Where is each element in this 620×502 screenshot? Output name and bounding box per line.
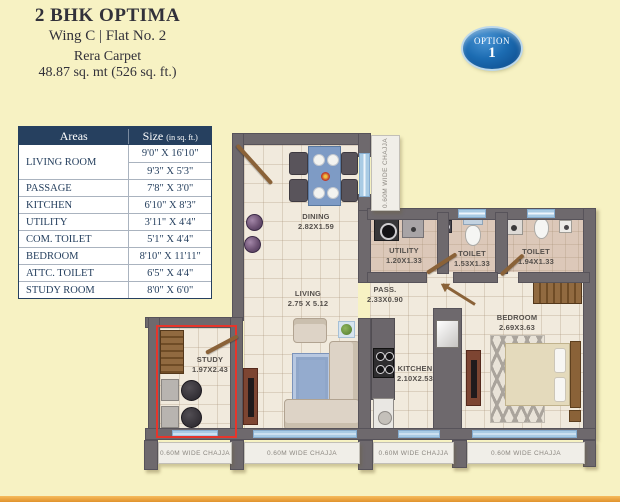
tv-screen: [471, 360, 477, 398]
areas-table: Areas Size (in sq. ft.) LIVING ROOM PASS…: [18, 126, 212, 299]
wall: [518, 272, 590, 283]
window: [472, 430, 577, 438]
table-row-bedroom: BEDROOM: [19, 247, 128, 264]
room-label-bedroom: BEDROOM 2.69X3.63: [482, 313, 552, 333]
window: [458, 209, 486, 218]
room-name: TOILET: [501, 247, 571, 257]
bed: [505, 343, 570, 406]
plant: [244, 236, 261, 253]
bed-headboard: [570, 341, 581, 408]
room-dims: 2.82X1.59: [281, 222, 351, 232]
table-row-utility: UTILITY: [19, 213, 128, 230]
table-row-kitchen: KITCHEN: [19, 196, 128, 213]
burner: [376, 352, 385, 361]
washer-door: [380, 223, 397, 240]
chajja-label: 0.60M WIDE CHAJJA: [491, 450, 561, 457]
chajja-bottom-bedroom: 0.60M WIDE CHAJJA: [467, 442, 585, 464]
areas-column-header: Areas: [19, 129, 128, 144]
plate: [327, 154, 339, 166]
size-attc-toilet: 6'5" X 4'4": [129, 264, 211, 281]
bedroom-wardrobe: [533, 281, 582, 304]
pillow: [554, 377, 566, 402]
sizes-column: 9'0" X 16'10" 9'3" X 5'3" 7'8" X 3'0" 6'…: [128, 145, 211, 298]
room-dims: 2.69X3.63: [482, 323, 552, 333]
size-utility: 3'11" X 4'4": [129, 213, 211, 230]
size-header-text: Size: [143, 129, 164, 143]
wall-pillar: [452, 440, 467, 468]
areas-table-body: LIVING ROOM PASSAGE KITCHEN UTILITY COM.…: [19, 145, 211, 298]
room-name: LIVING: [273, 289, 343, 299]
dining-table: [308, 146, 341, 206]
table-row-attc-toilet: ATTC. TOILET: [19, 264, 128, 281]
plant: [341, 324, 352, 335]
option-badge-number: 1: [488, 46, 496, 61]
bottom-accent-bar: [0, 496, 620, 502]
wall: [453, 272, 498, 283]
room-label-passage: PASS. 2.33X0.90: [350, 285, 420, 305]
plant-pot: [338, 321, 355, 338]
center-dish: [321, 172, 330, 181]
size-living-1: 9'0" X 16'10": [129, 145, 211, 162]
chajja-label: 0.60M WIDE CHAJJA: [382, 138, 389, 208]
toilet2-basin: [559, 220, 572, 233]
bedside-table: [569, 410, 581, 422]
room-dims: 2.10X2.53: [380, 374, 450, 384]
window: [359, 153, 370, 197]
size-header-unit: (in sq. ft.): [166, 133, 198, 142]
wall: [358, 318, 371, 440]
window: [527, 209, 555, 218]
areas-column: LIVING ROOM PASSAGE KITCHEN UTILITY COM.…: [19, 145, 128, 298]
room-name: BEDROOM: [482, 313, 552, 323]
window: [398, 430, 440, 438]
room-dims: 1.94X1.33: [501, 257, 571, 267]
l-sofa-horizontal: [284, 399, 360, 430]
l-sofa-vertical: [329, 341, 360, 403]
tv-screen: [248, 378, 254, 417]
table-row-com-toilet: COM. TOILET: [19, 230, 128, 247]
sink-bowl: [378, 411, 392, 425]
wall: [583, 208, 596, 440]
plate: [327, 187, 339, 199]
fridge: [436, 320, 459, 348]
wall: [367, 272, 427, 283]
dining-chair: [289, 179, 308, 202]
tv-unit-living: [243, 368, 258, 425]
chajja-label: 0.60M WIDE CHAJJA: [267, 450, 337, 457]
size-com-toilet: 5'1" X 4'4": [129, 230, 211, 247]
title-block: 2 BHK OPTIMA Wing C | Flat No. 2 Rera Ca…: [5, 5, 210, 81]
size-passage: 7'8" X 3'0": [129, 179, 211, 196]
room-dims: 1.97X2.43: [175, 365, 245, 375]
plant: [246, 214, 263, 231]
room-dims: 1.53X1.33: [437, 259, 507, 269]
size-study-room: 8'0" X 6'0": [129, 281, 211, 298]
size-column-header: Size (in sq. ft.): [128, 129, 211, 144]
dining-chair: [341, 179, 358, 202]
option-badge: OPTION 1: [463, 28, 521, 69]
plate: [313, 154, 325, 166]
wall: [232, 133, 244, 321]
room-name: KITCHEN: [380, 364, 450, 374]
rera-carpet-value: 48.87 sq. mt (526 sq. ft.): [5, 65, 210, 81]
wing-flat-subtitle: Wing C | Flat No. 2: [5, 28, 210, 45]
room-name: DINING: [281, 212, 351, 222]
dining-chair: [341, 152, 358, 175]
room-label-study: STUDY 1.97X2.43: [175, 355, 245, 375]
window: [253, 430, 357, 438]
wall-pillar: [144, 440, 158, 470]
room-name: PASS.: [350, 285, 420, 295]
chajja-top-right: 0.60M WIDE CHAJJA: [371, 135, 400, 211]
chajja-bottom-kitchen: 0.60M WIDE CHAJJA: [373, 442, 454, 464]
burner: [385, 352, 394, 361]
table-row-study-room: STUDY ROOM: [19, 281, 128, 298]
basin-drain: [564, 225, 569, 230]
room-name: TOILET: [437, 249, 507, 259]
rera-carpet-label: Rera Carpet: [5, 49, 210, 65]
page-title: 2 BHK OPTIMA: [5, 5, 210, 27]
floorplan-page: 2 BHK OPTIMA Wing C | Flat No. 2 Rera Ca…: [0, 0, 620, 502]
room-label-living: LIVING 2.75 X 5.12: [273, 289, 343, 309]
pillow: [554, 348, 566, 373]
room-label-toilet2: TOILET 1.94X1.33: [501, 247, 571, 267]
size-kitchen: 6'10" X 8'3": [129, 196, 211, 213]
utility-sink: [402, 219, 424, 238]
room-dims: 2.75 X 5.12: [273, 299, 343, 309]
chajja-label: 0.60M WIDE CHAJJA: [160, 450, 230, 457]
wall-pillar: [358, 440, 373, 470]
plate: [313, 187, 325, 199]
chajja-bottom-living: 0.60M WIDE CHAJJA: [244, 442, 360, 464]
sink-drain: [411, 227, 416, 232]
wall: [232, 133, 370, 145]
room-name: UTILITY: [369, 246, 439, 256]
chajja-label: 0.60M WIDE CHAJJA: [378, 450, 448, 457]
washing-machine: [374, 218, 399, 241]
room-label-toilet1: TOILET 1.53X1.33: [437, 249, 507, 269]
areas-table-header: Areas Size (in sq. ft.): [19, 127, 211, 145]
basin-drain: [511, 225, 517, 231]
size-bedroom: 8'10" X 11'11": [129, 247, 211, 264]
room-dims: 1.20X1.33: [369, 256, 439, 266]
loveseat: [293, 318, 327, 343]
table-row-living-room: LIVING ROOM: [19, 145, 128, 179]
room-label-kitchen: KITCHEN 2.10X2.53: [380, 364, 450, 384]
room-dims: 2.33X0.90: [350, 295, 420, 305]
toilet1-wc-bowl: [465, 225, 481, 246]
room-label-dining: DINING 2.82X1.59: [281, 212, 351, 232]
table-row-passage: PASSAGE: [19, 179, 128, 196]
dining-chair: [289, 152, 308, 175]
toilet2-wc-bowl: [534, 218, 549, 239]
chajja-bottom-study: 0.60M WIDE CHAJJA: [158, 442, 232, 464]
kitchen-sink: [373, 398, 394, 429]
size-living-2: 9'3" X 5'3": [129, 162, 211, 179]
wall-pillar: [230, 440, 244, 470]
room-label-utility: UTILITY 1.20X1.33: [369, 246, 439, 266]
room-name: STUDY: [175, 355, 245, 365]
tv-unit-bedroom: [466, 350, 481, 406]
